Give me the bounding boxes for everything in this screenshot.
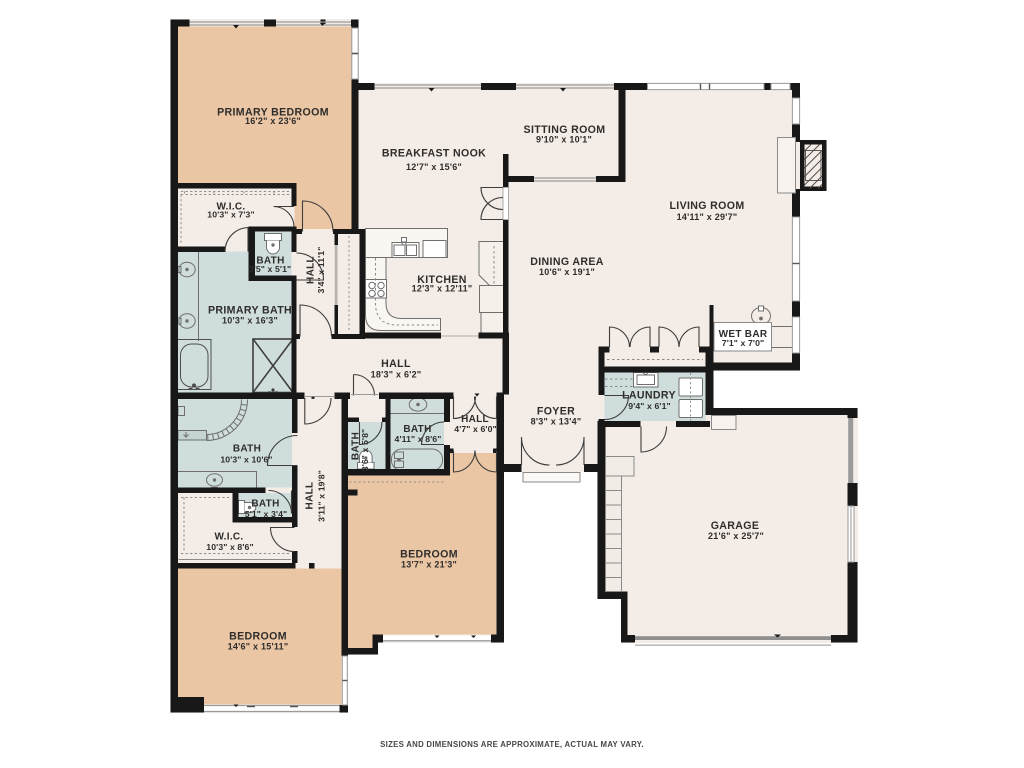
svg-text:3'5" x 5'1": 3'5" x 5'1" [249, 264, 291, 274]
svg-text:BATH: BATH [233, 444, 261, 455]
svg-text:SIZES AND DIMENSIONS ARE APPRO: SIZES AND DIMENSIONS ARE APPROXIMATE, AC… [380, 740, 644, 749]
svg-text:14'6" x 15'11": 14'6" x 15'11" [228, 642, 289, 652]
svg-text:10'6" x 19'1": 10'6" x 19'1" [539, 267, 595, 277]
svg-text:10'3" x 10'6": 10'3" x 10'6" [220, 455, 272, 465]
svg-text:10'3" x 7'3": 10'3" x 7'3" [207, 210, 254, 220]
svg-text:14'11" x 29'7": 14'11" x 29'7" [677, 212, 738, 222]
svg-text:HALL: HALL [306, 256, 317, 284]
svg-text:21'6" x 25'7": 21'6" x 25'7" [708, 531, 764, 541]
svg-text:9'4" x 6'1": 9'4" x 6'1" [628, 401, 670, 411]
svg-text:4'11" x 8'6": 4'11" x 8'6" [395, 434, 442, 444]
svg-text:3'4" x 11'1": 3'4" x 11'1" [316, 247, 326, 294]
svg-text:16'2" x 23'6": 16'2" x 23'6" [245, 116, 301, 126]
svg-text:3'11" x 19'8": 3'11" x 19'8" [317, 470, 327, 522]
svg-text:3'6" x 5'8": 3'6" x 5'8" [360, 429, 370, 471]
svg-text:LIVING ROOM: LIVING ROOM [669, 200, 744, 212]
svg-text:5'1" x 3'4": 5'1" x 3'4" [245, 509, 287, 519]
svg-text:7'1" x 7'0": 7'1" x 7'0" [722, 338, 764, 348]
svg-text:12'3" x 12'11": 12'3" x 12'11" [412, 284, 473, 294]
svg-text:18'3" x 6'2": 18'3" x 6'2" [371, 370, 422, 380]
svg-text:8'3" x 13'4": 8'3" x 13'4" [531, 417, 582, 427]
svg-text:HALL: HALL [305, 482, 316, 510]
svg-text:10'3" x 16'3": 10'3" x 16'3" [222, 316, 278, 326]
svg-text:10'3" x 8'6": 10'3" x 8'6" [206, 542, 253, 552]
svg-text:12'7" x 15'6": 12'7" x 15'6" [406, 162, 462, 172]
svg-text:13'7" x 21'3": 13'7" x 21'3" [401, 560, 457, 570]
svg-text:HALL: HALL [381, 358, 411, 370]
svg-text:BREAKFAST NOOK: BREAKFAST NOOK [382, 148, 486, 160]
svg-text:4'7" x 6'0": 4'7" x 6'0" [454, 424, 496, 434]
svg-text:LAUNDRY: LAUNDRY [622, 390, 676, 402]
svg-text:W.I.C.: W.I.C. [214, 532, 243, 543]
svg-text:BATH: BATH [251, 499, 279, 510]
svg-text:9'10" x 10'1": 9'10" x 10'1" [536, 135, 592, 145]
